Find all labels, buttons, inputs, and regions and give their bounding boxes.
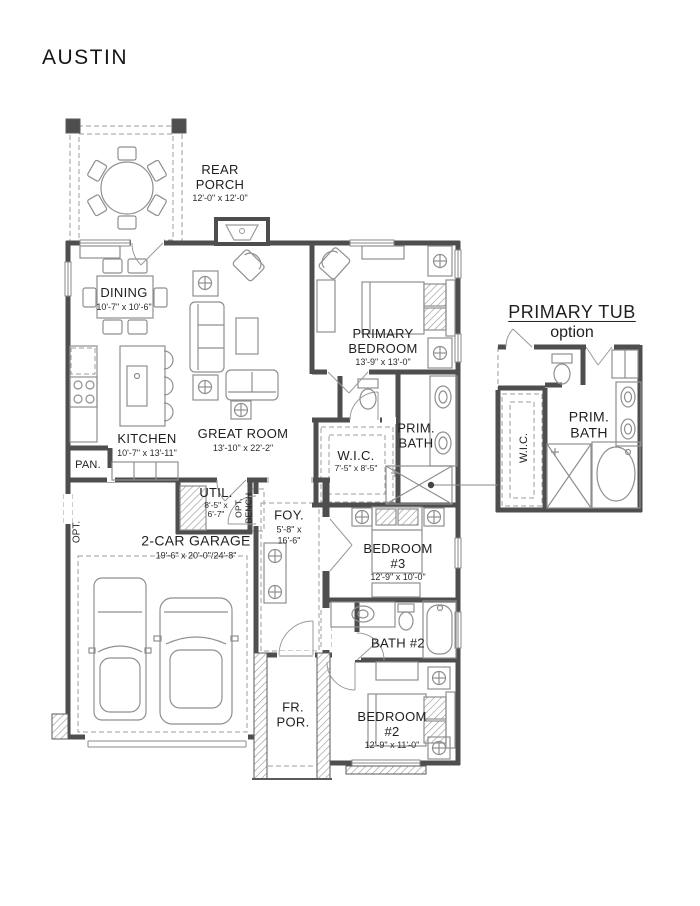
window xyxy=(65,262,71,296)
sideboard xyxy=(80,246,120,258)
porch-pier-right xyxy=(317,653,330,779)
great-room-furniture xyxy=(190,247,278,419)
label-primary-bedroom: PRIMARY BEDROOM 13'-9" x 13'-0" xyxy=(348,327,417,367)
bedroom2-door xyxy=(327,662,355,690)
porch-dining-set xyxy=(87,147,167,229)
label-util: UTIL. 8'-5" x 6'-7" xyxy=(199,486,232,520)
window-bench xyxy=(317,280,335,332)
sofa xyxy=(190,302,224,372)
porch-pier-left xyxy=(254,653,267,779)
leader-dot xyxy=(428,482,434,488)
label-wic: W.I.C. 7'-5" x 8'-5" xyxy=(335,449,378,473)
label-detail-wic: W.I.C. xyxy=(518,433,530,463)
garage-corner-return xyxy=(52,714,68,739)
option-leader-line xyxy=(428,482,498,488)
window-sill xyxy=(346,766,426,774)
toilet-bowl xyxy=(554,364,570,384)
label-opt: OPT. xyxy=(71,521,82,543)
toilet-bowl xyxy=(399,612,413,630)
porch-post xyxy=(66,119,80,133)
window xyxy=(455,538,461,568)
toilet-tank xyxy=(398,604,414,612)
headboard xyxy=(446,280,455,336)
sink xyxy=(435,432,451,454)
window xyxy=(352,760,420,766)
sink xyxy=(435,386,451,408)
floor-plan-page: AUSTIN REAR PORCH 12'-0" x 12'-0" DINING… xyxy=(0,0,700,906)
label-pantry: PAN. xyxy=(75,459,101,471)
window xyxy=(80,240,130,246)
label-opt-bench: OPT. BENCH xyxy=(234,493,253,524)
label-foyer: FOY. 5'-8" x 16'-6" xyxy=(274,509,304,546)
rear-porch-outline xyxy=(70,126,182,241)
pillow xyxy=(424,721,446,743)
garage-car-2 xyxy=(154,598,238,724)
detail-shower xyxy=(547,444,591,508)
garage-option-extension xyxy=(78,556,247,732)
sink xyxy=(621,387,635,407)
pillow xyxy=(424,284,446,306)
coffee-table xyxy=(236,318,258,354)
armchair xyxy=(316,245,350,280)
counter xyxy=(112,462,178,480)
sink xyxy=(621,419,635,439)
island-sink xyxy=(127,366,147,406)
counter xyxy=(70,346,97,442)
pillow xyxy=(424,308,446,330)
fridge xyxy=(71,348,95,374)
label-front-porch: FR. POR. xyxy=(277,700,310,729)
label-detail-prim-bath: PRIM. BATH xyxy=(569,409,609,440)
label-kitchen: KITCHEN 10'-7" x 13'-11" xyxy=(117,432,177,458)
foyer-furniture xyxy=(264,543,286,603)
window xyxy=(350,240,394,246)
detail-tub xyxy=(592,442,640,508)
dresser xyxy=(376,662,418,680)
label-rear-porch: REAR PORCH 12'-0" x 12'-0" xyxy=(192,163,247,203)
front-door xyxy=(279,621,313,655)
toilet-tank xyxy=(552,354,572,363)
pillow xyxy=(376,509,396,525)
window xyxy=(455,250,461,278)
garage-door xyxy=(88,741,246,747)
dresser xyxy=(362,246,404,259)
garage-car-1 xyxy=(89,578,151,720)
window xyxy=(455,334,461,362)
fireplace xyxy=(216,219,268,244)
bedroom3-doors xyxy=(330,519,352,571)
porch-post xyxy=(172,119,186,133)
tub xyxy=(423,601,456,658)
label-dining: DINING 10'-7" x 10'-6" xyxy=(96,286,151,312)
armchair xyxy=(232,247,267,282)
label-bath2: BATH #2 xyxy=(371,637,425,652)
bench xyxy=(372,583,420,597)
plan-title: AUSTIN xyxy=(42,46,128,70)
label-great-room: GREAT ROOM 13'-10" x 22'-2" xyxy=(198,427,289,453)
label-prim-bath: PRIM. BATH xyxy=(397,421,435,450)
label-option-title: PRIMARY TUB option xyxy=(508,302,636,342)
label-garage: 2-CAR GARAGE 19'-6" x 20'-0"/24'-8" xyxy=(141,534,250,561)
label-bedroom3: BEDROOM #3 12'-9" x 10'-0" xyxy=(363,542,432,582)
pillow xyxy=(424,697,446,719)
pillow xyxy=(398,509,418,525)
label-bedroom2: BEDROOM #2 12'-9" x 11'-0" xyxy=(357,710,426,750)
